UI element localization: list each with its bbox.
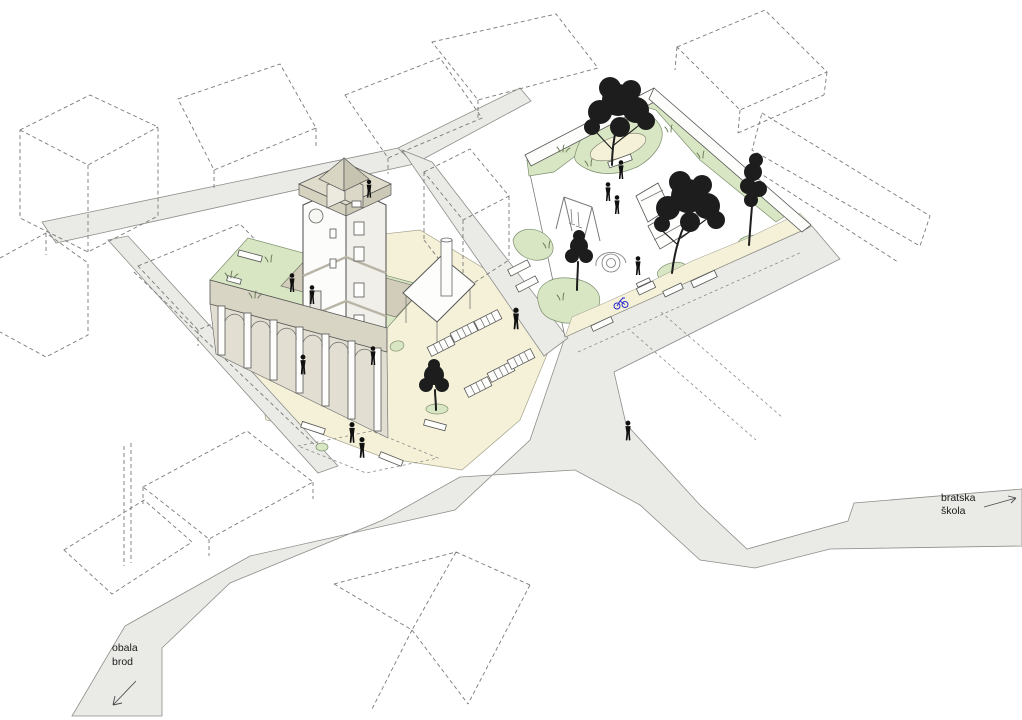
context-building-outline [124, 443, 131, 566]
context-building-outline [0, 233, 88, 357]
chimney [441, 238, 452, 296]
bench [508, 260, 531, 276]
label-brod: brod [112, 656, 133, 668]
label-obala: obala [112, 642, 138, 654]
context-building-outline [64, 500, 192, 594]
site-plan-drawing: bratska škola obala brod [0, 0, 1022, 720]
arched-niche [309, 209, 323, 223]
label-bratska: bratska [941, 492, 976, 504]
site-plan-canvas: bratska škola obala brod [0, 0, 1022, 720]
context-building-outline [143, 431, 313, 556]
person-figure [359, 437, 365, 458]
street-top-continuation [398, 88, 531, 164]
tree-planter [426, 404, 448, 414]
context-building-outline [675, 10, 827, 133]
shrub [316, 443, 328, 451]
context-building-outline [334, 552, 530, 711]
label-skola: škola [941, 505, 966, 517]
